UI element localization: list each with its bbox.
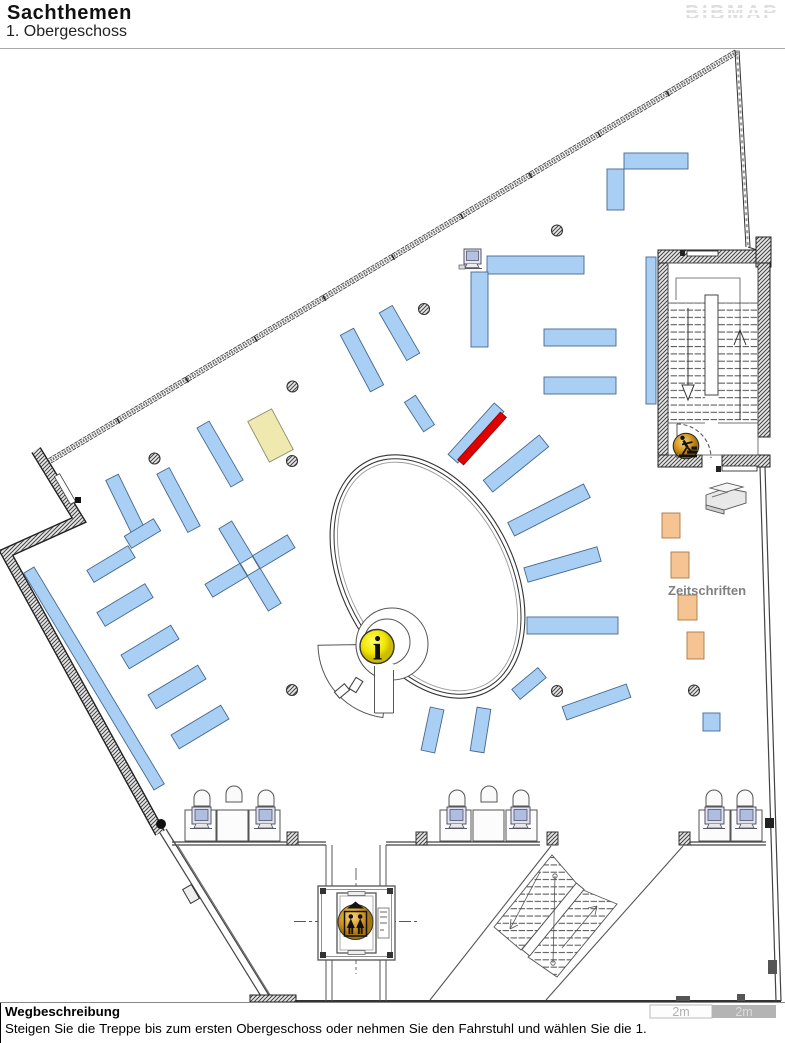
svg-text:i: i [373, 631, 382, 668]
svg-text:2m: 2m [672, 1005, 689, 1019]
svg-text:Zeitschriften: Zeitschriften [668, 583, 746, 598]
svg-text:2m: 2m [735, 1005, 752, 1019]
